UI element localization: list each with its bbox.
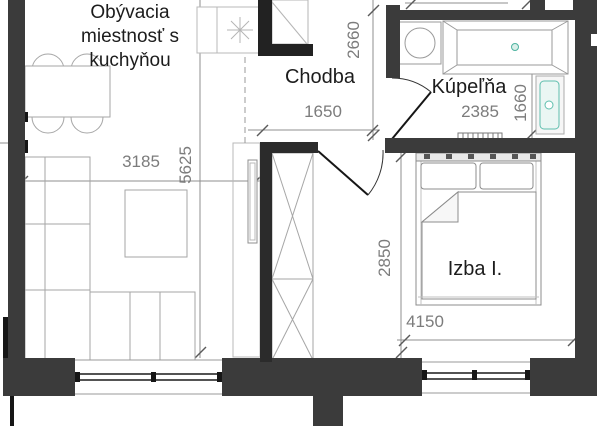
dim-living-width: 3185 <box>111 152 171 172</box>
dim-hall-width: 1650 <box>293 102 353 122</box>
hall-closet <box>272 0 308 44</box>
dim-hall-depth: 2660 <box>344 10 364 70</box>
wall-right <box>575 0 597 396</box>
label-living-line3: kuchyňou <box>40 49 220 73</box>
wall-face-mark <box>25 140 28 153</box>
wall-left <box>8 0 25 358</box>
label-living-room: Obývacia miestnosť s kuchyňou <box>40 1 220 73</box>
wall-stub-outer <box>3 317 8 358</box>
wall-bath-left <box>386 5 400 78</box>
shower-unit <box>536 76 564 134</box>
sofa <box>25 157 195 360</box>
label-living-line1: Obývacia <box>40 1 220 25</box>
dining-table <box>25 66 110 117</box>
washing-machine <box>399 22 441 64</box>
bathtub <box>443 21 568 74</box>
wall-bottom-middle <box>222 358 422 396</box>
wall-top-corner <box>573 0 597 10</box>
wall-bath-bedroom <box>385 138 597 153</box>
pillow <box>421 163 476 189</box>
label-living-line2: miestnosť s <box>40 25 220 49</box>
dim-living-depth: 5625 <box>176 135 196 195</box>
wall-bedroom-top <box>260 142 318 153</box>
wall-stub-below <box>10 396 14 426</box>
window-living <box>75 360 222 394</box>
wall-bottom-left <box>3 358 75 396</box>
wall-face-mark <box>25 112 28 122</box>
wardrobe <box>272 153 313 360</box>
wall-partition <box>260 142 272 362</box>
dim-bath-width: 2385 <box>450 102 510 122</box>
label-bedroom: Izba I. <box>430 257 520 281</box>
window-bedroom <box>422 362 530 393</box>
wall-top-bath <box>386 10 597 20</box>
floor-plan: Obývacia miestnosť s kuchyňou Chodba Kúp… <box>0 0 600 426</box>
pillow <box>480 163 533 189</box>
wall-pier <box>313 396 343 426</box>
double-bed <box>416 153 541 305</box>
dim-bedroom-depth: 2850 <box>375 228 395 288</box>
coffee-table <box>125 190 187 257</box>
label-bathroom: Kúpeľňa <box>419 75 519 99</box>
wall-bottom-right <box>530 358 577 396</box>
dim-bath-niche: 1660 <box>511 73 531 133</box>
drain-icon <box>545 101 553 109</box>
wall-notch <box>591 34 600 46</box>
dim-bedroom-width: 4150 <box>395 312 455 332</box>
bedroom-door <box>318 150 383 195</box>
wall-closet-horizontal <box>258 44 313 56</box>
wall-top-piece <box>530 0 545 10</box>
drain-icon <box>512 44 519 51</box>
tv-board <box>233 143 260 357</box>
